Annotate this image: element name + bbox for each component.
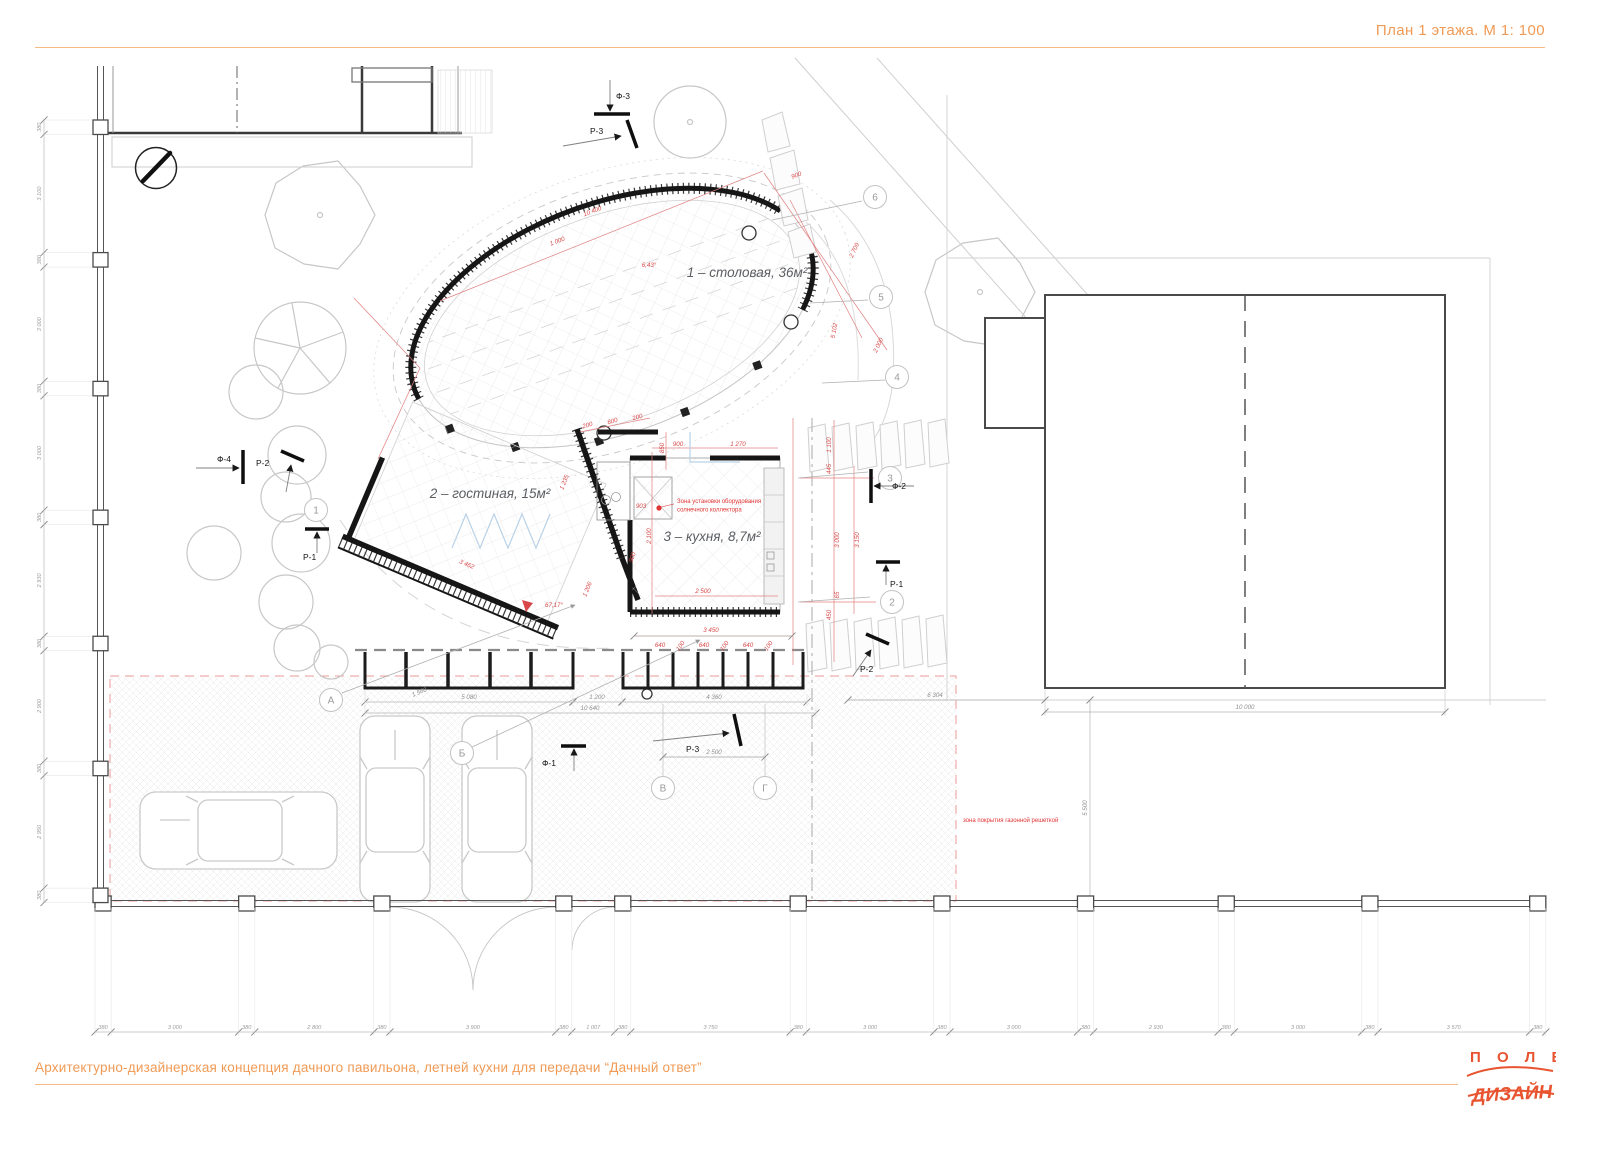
fence-post [1077, 896, 1093, 911]
solar-note: Зона установки оборудования [677, 499, 761, 505]
bottom-fence: 3803 0003802 8003803 9003801 0073803 750… [92, 896, 1550, 1036]
fence-post [374, 896, 390, 911]
fence-post [93, 761, 108, 775]
dim-label: 2 000 [872, 336, 886, 354]
fence-dim: 3 000 [37, 316, 43, 331]
fence-post [556, 896, 572, 911]
section-label: Р-1 [303, 552, 317, 562]
section-arrow [563, 136, 621, 146]
section-label: Р-3 [686, 744, 700, 754]
dim-label: 2 500 [705, 749, 722, 756]
fence-dim: 3 900 [466, 1025, 481, 1031]
axis-label: Г [762, 784, 768, 795]
fence-dim: 380 [1081, 1025, 1091, 1031]
fence-dim: 380 [1533, 1025, 1543, 1031]
fence-dim: 2 900 [37, 698, 43, 714]
section-label: Ф-3 [616, 91, 630, 101]
fence-dim: 380 [1365, 1025, 1375, 1031]
fence-post [93, 510, 108, 524]
fence-dim: 380 [37, 122, 43, 132]
axis-label: Б [459, 749, 466, 760]
tree [259, 575, 313, 629]
fence-post [1362, 896, 1378, 911]
axis-label: 2 [889, 598, 895, 609]
dim-label: 2 500 [694, 588, 711, 595]
dim-label: 65 [834, 591, 841, 598]
fence-dim: 3 000 [1007, 1025, 1022, 1031]
fence-dim: 380 [242, 1025, 252, 1031]
gate-leaf [473, 907, 556, 990]
paving-stones [762, 112, 949, 672]
window-band [764, 468, 784, 604]
fence-post [239, 896, 255, 911]
dim-label: 5 102 [830, 322, 840, 339]
car [360, 716, 430, 902]
fence-dim: 2 930 [37, 573, 43, 589]
dim-label: 2 709 [848, 241, 862, 259]
fence-dim: 3 000 [1291, 1025, 1306, 1031]
logo-swash [1467, 1067, 1553, 1076]
existing-house [100, 66, 492, 167]
fence-post [1218, 896, 1234, 911]
fence-dim: 1 007 [586, 1025, 601, 1031]
dim-label: 640 [655, 642, 666, 649]
dim-label: 850 [659, 442, 666, 453]
tree [187, 526, 241, 580]
north-arrow-icon [136, 148, 177, 189]
fence-post [93, 888, 108, 902]
room-label-kitchen: 3 – кухня, 8,7м² [663, 529, 761, 544]
dim-label: 3 450 [703, 627, 719, 634]
fence-dim: 380 [37, 890, 43, 900]
fence-dim: 380 [37, 512, 43, 522]
tree [229, 365, 283, 419]
footer-rule [35, 1084, 1458, 1085]
dim-label: 1 270 [730, 441, 746, 448]
solar-note: солнечного коллектора [677, 508, 742, 514]
dim-label: 6 304 [927, 692, 943, 699]
dim-label: 1 200 [589, 694, 605, 701]
dim-label: 1 206 [581, 580, 594, 597]
dim-label: 4 360 [706, 694, 722, 701]
fence-dim: 380 [1222, 1025, 1232, 1031]
fence-dim: 380 [618, 1025, 628, 1031]
fence-dim: 380 [377, 1025, 387, 1031]
section-bar [281, 451, 304, 461]
fence-dim: 380 [98, 1025, 108, 1031]
fence-dim: 380 [37, 638, 43, 648]
fence-post [93, 381, 108, 395]
tree [654, 86, 726, 158]
fence-dim: 3 000 [168, 1025, 183, 1031]
fence-dim: 3 750 [703, 1025, 718, 1031]
fence-post [615, 896, 631, 911]
fence-post [790, 896, 806, 911]
room-label-dining: 1 – столовая, 36м² [687, 265, 808, 280]
car [462, 716, 532, 902]
neighbor-building [985, 295, 1445, 716]
gate-leaf [390, 907, 473, 990]
dim-label: 67,17° [545, 602, 563, 609]
pole-design-logo: П О Л Е ДИЗАЙН [1464, 1046, 1556, 1146]
drawing-sheet: План 1 этажа. М 1: 100 [0, 0, 1600, 1160]
left-fence: 3803 1003803 0003803 0003802 9303802 900… [37, 66, 108, 906]
section-label: Р-1 [890, 579, 904, 589]
axis-label: В [660, 784, 667, 795]
tree [265, 161, 375, 269]
dim-label: 1 100 [826, 437, 833, 453]
car [140, 792, 337, 869]
section-label: Р-2 [256, 458, 270, 468]
dim-label: 5 080 [461, 694, 477, 701]
section-arrow [286, 465, 291, 492]
dim-label: 450 [826, 609, 833, 620]
logo-bottom-text: ДИЗАЙН [1469, 1081, 1554, 1107]
sheet-caption: Архитектурно-дизайнерская концепция дачн… [35, 1060, 702, 1075]
fence-post [1530, 896, 1546, 911]
lawn-note: зона покрытия газонной решеткой [963, 817, 1058, 824]
axis-label: 4 [894, 373, 900, 384]
dim-label: 2 100 [646, 528, 653, 545]
section-label: Ф-1 [542, 758, 556, 768]
fence-dim: 2 950 [37, 824, 43, 840]
dim-label: 100 [719, 639, 731, 652]
axis-label: 6 [872, 193, 878, 204]
fence-dim: 2 800 [306, 1025, 322, 1031]
tree [272, 514, 330, 572]
fence-dim: 380 [937, 1025, 947, 1031]
fence-dim: 380 [794, 1025, 804, 1031]
dim-label: 640 [743, 642, 754, 649]
tree [274, 625, 320, 671]
fence-dim: 380 [37, 383, 43, 393]
axis-label: 5 [878, 293, 884, 304]
tree [314, 645, 348, 679]
fence-post [93, 636, 108, 650]
fence-dim: 3 570 [1447, 1025, 1462, 1031]
fence-post [93, 120, 108, 134]
logo-top-text: П О Л Е [1470, 1049, 1556, 1066]
fence-dim: 3 100 [37, 186, 43, 201]
axis-label: 1 [313, 506, 319, 517]
fence-post [934, 896, 950, 911]
fence-dim: 3 000 [863, 1025, 878, 1031]
dim-label: 900 [673, 441, 684, 448]
dim-label: 3 000 [834, 532, 841, 548]
fence-dim: 380 [37, 763, 43, 773]
dim-label: 3 150 [854, 532, 861, 548]
wicket-gate [572, 907, 615, 950]
fence-dim: 380 [37, 254, 43, 264]
tree [268, 426, 326, 484]
dim-label: 640 [699, 642, 710, 649]
fence-dim: 3 000 [37, 445, 43, 460]
dim-label: 903 [636, 503, 647, 510]
section-label: Ф-2 [892, 481, 906, 491]
dim-label: 6,43° [642, 262, 657, 269]
fence-post [93, 253, 108, 267]
dim-label: 5 500 [1082, 800, 1089, 816]
floor-plan-canvas: АБВГ123456Ф-3Р-3Ф-4Р-2Р-1Ф-2Р-1Р-2Ф-1Р-3… [0, 0, 1600, 1160]
section-label: Ф-4 [217, 454, 231, 464]
dim-label: 445 [826, 463, 833, 474]
fence-dim: 380 [559, 1025, 569, 1031]
dim-label: 10 000 [1236, 704, 1255, 711]
building-annex [985, 318, 1045, 428]
room-label-living: 2 – гостиная, 15м² [429, 486, 551, 501]
section-bar [627, 120, 637, 148]
dim-label: 10 640 [581, 705, 600, 712]
axis-label: А [328, 696, 335, 707]
section-label: Р-2 [860, 664, 874, 674]
gates [390, 907, 615, 990]
fence-dim: 2 930 [1148, 1025, 1164, 1031]
section-label: Р-3 [590, 126, 604, 136]
